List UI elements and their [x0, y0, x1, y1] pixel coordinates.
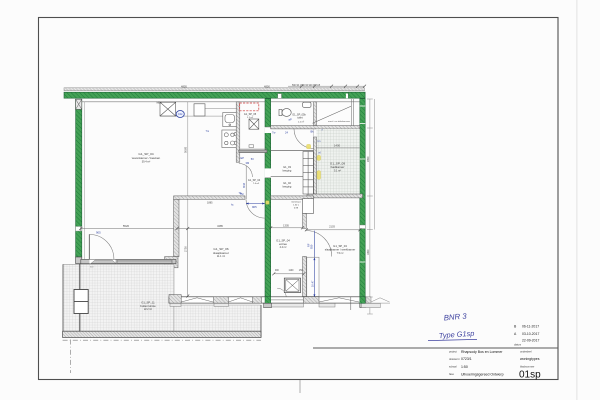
- svg-text:aansl. mv dakdoorvoer: aansl. mv dakdoorvoer: [328, 120, 350, 123]
- svg-text:22.2 m²: 22.2 m²: [144, 308, 152, 311]
- svg-text:3M: 3M: [246, 161, 250, 165]
- svg-text:2990: 2990: [367, 156, 370, 162]
- svg-text:1890: 1890: [367, 249, 370, 255]
- svg-text:3485: 3485: [217, 224, 223, 228]
- svg-text:90M: 90M: [243, 183, 246, 188]
- svg-text:900: 900: [275, 270, 280, 272]
- svg-text:1305: 1305: [283, 224, 289, 228]
- svg-text:4.4 m²: 4.4 m²: [280, 246, 287, 249]
- svg-text:1.2 m²: 1.2 m²: [298, 121, 304, 124]
- svg-text:590 90 1790 90 940 90 615: 590 90 1790 90 940 90 615: [292, 85, 321, 87]
- svg-text:2730: 2730: [184, 246, 188, 252]
- svg-text:fase: fase: [449, 372, 454, 376]
- svg-text:10.47: 10.47: [310, 280, 314, 287]
- svg-text:4805: 4805: [181, 85, 187, 89]
- svg-text:Rhapsody Bos en Lommer: Rhapsody Bos en Lommer: [461, 350, 503, 354]
- svg-text:0.98: 0.98: [294, 207, 299, 209]
- svg-text:B: B: [514, 325, 517, 329]
- svg-text:hc: hc: [231, 204, 234, 207]
- svg-text:G1_SP_05: G1_SP_05: [244, 113, 257, 116]
- svg-text:24: 24: [285, 130, 288, 134]
- svg-text:5520: 5520: [123, 224, 130, 228]
- svg-text:1885: 1885: [207, 201, 213, 204]
- svg-text:7m: 7m: [206, 129, 210, 133]
- svg-text:06-11-2017: 06-11-2017: [522, 325, 539, 329]
- svg-text:G1_02: G1_02: [283, 181, 291, 185]
- svg-text:905: 905: [96, 231, 101, 235]
- svg-text:aP: aP: [289, 118, 292, 122]
- svg-text:BNR 3: BNR 3: [443, 311, 467, 322]
- svg-text:7.4 m²: 7.4 m²: [253, 182, 259, 185]
- svg-text:dossiernr.: dossiernr.: [449, 357, 461, 361]
- svg-text:MBa: MBa: [157, 101, 163, 104]
- svg-text:0723/1: 0723/1: [461, 357, 472, 361]
- svg-text:slaapkamer: slaapkamer: [213, 251, 229, 255]
- svg-text:01sp: 01sp: [519, 369, 541, 380]
- svg-text:project: project: [449, 350, 457, 354]
- svg-text:schaal: schaal: [449, 365, 457, 369]
- svg-text:39.4 m²: 39.4 m²: [142, 161, 151, 164]
- svg-text:1.50 x: 1.50 x: [293, 204, 300, 206]
- svg-text:bladnummer: bladnummer: [520, 364, 535, 368]
- svg-text:RF: RF: [307, 243, 311, 247]
- svg-text:datum: datum: [514, 342, 521, 346]
- svg-text:4800: 4800: [264, 85, 270, 89]
- svg-text:5.1 m²: 5.1 m²: [334, 170, 341, 173]
- svg-text:A: A: [514, 332, 517, 336]
- svg-text:Type G1sp: Type G1sp: [439, 329, 475, 340]
- svg-text:5085: 5085: [184, 146, 188, 153]
- svg-text:7w: 7w: [272, 130, 275, 134]
- svg-text:tm: tm: [318, 139, 321, 143]
- svg-text:G1_SP_04: G1_SP_04: [248, 179, 261, 182]
- svg-text:1:50: 1:50: [461, 365, 468, 369]
- svg-text:badkamer: badkamer: [331, 165, 345, 169]
- svg-text:50: 50: [251, 157, 254, 161]
- svg-text:woningtypes: woningtypes: [520, 357, 540, 361]
- svg-text:EP: EP: [241, 156, 245, 160]
- svg-text:7.5 m²: 7.5 m²: [337, 252, 344, 255]
- svg-text:22-09-2017: 22-09-2017: [522, 339, 539, 343]
- svg-text:905: 905: [252, 205, 257, 209]
- svg-text:1100: 1100: [289, 270, 295, 272]
- svg-text:toilet: toilet: [297, 117, 303, 120]
- svg-text:11.1 m²: 11.1 m²: [217, 255, 225, 258]
- svg-text:woonkamer / keuken: woonkamer / keuken: [132, 156, 161, 160]
- svg-text:berging: berging: [283, 168, 292, 172]
- svg-text:Uitvoeringsgereed Ontwerp: Uitvoeringsgereed Ontwerp: [461, 372, 504, 376]
- svg-text:berging: berging: [283, 184, 292, 188]
- svg-text:meterkast: meterkast: [291, 200, 301, 203]
- svg-text:CAI: CAI: [178, 112, 183, 116]
- svg-text:1400: 1400: [334, 144, 341, 148]
- svg-text:03-10-2017: 03-10-2017: [522, 332, 539, 336]
- svg-text:G1_03: G1_03: [283, 165, 291, 169]
- svg-text:2103: 2103: [329, 225, 335, 229]
- svg-text:onderdeel: onderdeel: [520, 350, 532, 354]
